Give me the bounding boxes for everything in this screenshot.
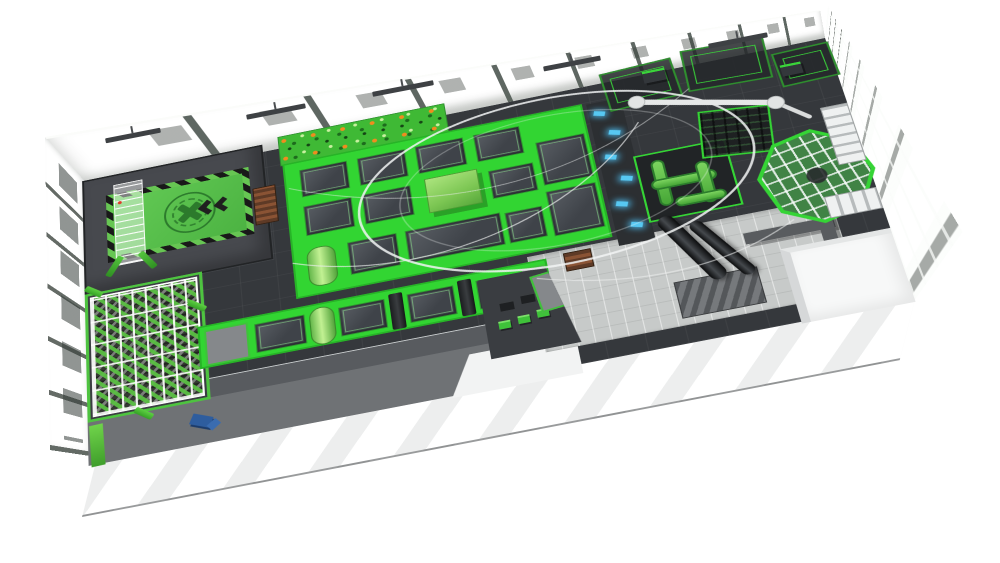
foam-wedge	[457, 278, 477, 316]
trampoline-bed	[338, 299, 388, 337]
light-target-icon	[605, 154, 617, 159]
foam-pit	[85, 272, 211, 423]
red-light-icon	[118, 201, 122, 205]
trampoline-bed	[299, 161, 350, 198]
foam-block	[520, 292, 536, 304]
light-target-icon	[631, 222, 644, 228]
trampoline-bed	[347, 233, 401, 275]
blue-bench-part	[207, 418, 222, 431]
trampoline-bed	[303, 197, 355, 236]
trampoline-bed	[357, 149, 409, 186]
light-target-icon	[621, 176, 633, 181]
trampoline-bed	[362, 185, 415, 224]
wood-stairs	[252, 184, 279, 225]
trampoline-bed	[406, 285, 457, 323]
light-target-icon	[593, 111, 605, 116]
foam-roller	[308, 305, 338, 347]
light-target-icon	[616, 201, 629, 206]
foam-block	[499, 300, 515, 312]
foam-pit-truss	[90, 277, 205, 418]
zipline-arm	[776, 97, 809, 122]
jump-box	[424, 169, 483, 214]
foam-roller	[306, 244, 339, 288]
light-target-icon	[608, 130, 620, 135]
jump-truss-tower	[113, 179, 146, 266]
trampoline-park-render	[0, 0, 1000, 563]
performance-trampoline	[545, 182, 605, 236]
foam-wedge	[388, 292, 407, 330]
landing-mat	[204, 322, 251, 366]
foam-block	[498, 320, 511, 330]
trampoline-bed	[488, 162, 539, 199]
trampoline-bed	[254, 314, 307, 353]
foam-block	[517, 314, 530, 324]
green-ramp	[89, 423, 106, 467]
blue-bench	[189, 413, 214, 427]
trampoline-bed	[504, 206, 548, 244]
trampoline-bed-long	[405, 212, 506, 263]
trampoline-bed	[473, 126, 525, 162]
trampoline-bed	[415, 137, 468, 174]
performance-trampoline	[535, 133, 594, 186]
west-wall-windows	[58, 163, 83, 443]
